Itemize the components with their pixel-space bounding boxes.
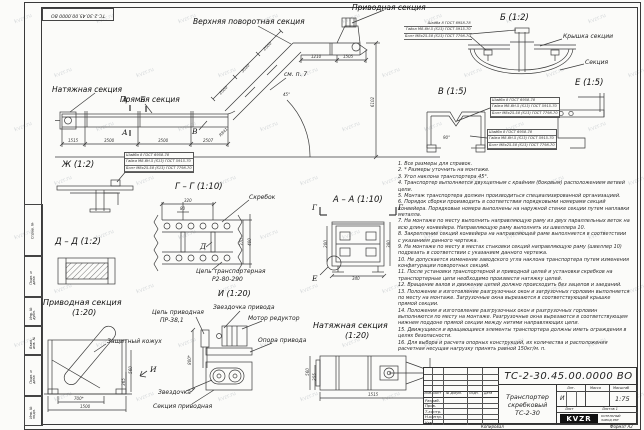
dim-6102: 6102 — [371, 97, 375, 107]
mass-header: Масса — [590, 387, 601, 390]
label-motor-reducer: Мотор редуктор — [248, 316, 300, 322]
stamp-cell-podp1: Подп. и дата — [24, 255, 43, 298]
stamp-cell-sprav: Справ. № — [24, 204, 43, 257]
dim-1210: 1210 — [311, 55, 321, 59]
kvzr-logo-text: KVZR — [566, 415, 591, 423]
title-block-left-grid: Изм. Лист № докум. Подп. Дата Разраб. Пр… — [424, 368, 499, 425]
label-straight-section: Прямая секция — [120, 96, 180, 104]
drive-section-title: Приводная секция — [43, 299, 122, 307]
label-drive-chain-1: Цепь приводная — [152, 310, 204, 316]
note-14: 14. Положения и изготовление разгрузочны… — [398, 308, 630, 327]
view-gg-title: Г – Г (1:10) — [175, 183, 223, 192]
dim-400: 400 — [248, 238, 252, 246]
dim-3500-1: 3500 — [104, 139, 114, 143]
label-drive-sprocket: Звездочка привода — [213, 305, 275, 311]
fastener-line3: Болт М8х25.58 (S13) ГОСТ 7798-70 — [404, 34, 472, 40]
dim-200: 200 — [324, 240, 328, 248]
view-mark-i: И — [150, 366, 157, 374]
note-4: 4. Транспортер выполняется двухцепным с … — [398, 180, 630, 193]
note-8: 8. Закрепление секций конвейера на напра… — [398, 231, 630, 244]
label-protective-casing: Защитный кожух — [107, 339, 162, 345]
note-9: 9. На монтаже по месту в местах стыковки… — [398, 244, 630, 257]
section-mark-d: Д — [200, 243, 206, 251]
note-13: 13. Положение и изготовление разгрузочны… — [398, 289, 630, 308]
dim-365: 365 — [122, 378, 126, 386]
label-see-note: см. п. 7 — [284, 72, 307, 78]
dim-255: 255 — [313, 373, 317, 381]
label-drive-chain-2: ПР-38,1 — [160, 318, 184, 324]
stamp-label: Подп. и дата — [30, 367, 37, 384]
label-drive-support: Опора привода — [258, 338, 306, 344]
dim-80: 80 — [180, 207, 185, 211]
col-list: Лист — [433, 392, 441, 395]
part-name-1: Транспортер — [506, 394, 549, 401]
note-7: 7. На монтаже по месту выполнить направл… — [398, 218, 630, 231]
view-v-title: В (1:5) — [438, 88, 467, 97]
note-15: 15. Движущиеся и вращающиеся элементы тр… — [398, 327, 630, 340]
part-name-3: ТС-2-30 — [515, 410, 540, 417]
label-drive-section: Приводная секция — [352, 4, 426, 12]
dim-320: 320 — [184, 199, 192, 203]
row-razrab: Разраб. — [425, 399, 440, 403]
row-utv: Утв. — [425, 421, 433, 425]
fastener-callout-e: Шайба 8 ГОСТ 6958-78 Гайка М8-6Н.5 (S13)… — [487, 129, 557, 150]
kvzr-logo: KVZR — [560, 414, 598, 423]
stamp-label: Подп. и дата — [30, 268, 37, 285]
label-section-cover: Крышка секции — [563, 34, 613, 40]
copied-label: Копировал — [481, 425, 504, 429]
view-dd-title: Д – Д (1:2) — [55, 238, 101, 247]
row-prov: Пров. — [425, 404, 436, 408]
dim-1515-tension: 1515 — [368, 393, 378, 397]
dim-1500: 1500 — [80, 405, 90, 409]
label-tension-section: Натяжная секция — [52, 86, 122, 94]
stamp-label: Справ. № — [32, 222, 35, 239]
view-aa-title: А – А (1:10) — [333, 196, 383, 205]
section-mark-a-top: А — [122, 96, 128, 104]
title-block-name-cell: Транспортер скребковый ТС-2-30 — [499, 385, 557, 425]
fastener-callout-b: Шайба 8 ГОСТ 6958-78 Гайка М8-6Н.5 (S13)… — [404, 21, 472, 40]
col-izm: Изм. — [425, 392, 433, 395]
label-section: Секция — [585, 60, 608, 66]
mark-g-left: Г — [312, 204, 317, 212]
sheets-label: Листов 1 — [602, 408, 618, 411]
note-11: 11. После установки транспортерной и при… — [398, 269, 630, 282]
dim-380: 380 — [387, 240, 391, 248]
label-scraper: Скребок — [249, 195, 275, 201]
fastener-line3: Болт М8х25.58 (S13) ГОСТ 7798-70 — [488, 143, 556, 149]
view-e-title: Е (1:5) — [575, 79, 603, 88]
stamp-cell-vzam: Взам. инв. № — [24, 325, 43, 356]
section-mark-v: В — [192, 128, 198, 136]
row-nkontr: Н.контр. — [425, 415, 442, 419]
col-podp: Подп. — [469, 392, 479, 395]
col-ndokum: № докум. — [446, 392, 462, 395]
mark-e-detail: Е — [312, 275, 317, 283]
stamp-cell-podp2: Подп. и дата — [24, 354, 43, 397]
doc-number: ТС-2-30.45.00.0000 ВО — [504, 371, 632, 382]
dim-angle-45: 45° — [283, 93, 290, 97]
liter-header: Лит. — [567, 387, 575, 390]
note-12: 12. Вращение валов и движение цепей долж… — [398, 282, 630, 288]
stamp-label: Взам. инв. № — [30, 332, 37, 349]
liter-value: И — [560, 395, 565, 402]
view-i-title: И (1:20) — [218, 290, 251, 298]
sheet-label: Лист — [565, 408, 574, 411]
stamp-cell-inv-dubl: Инв. № дубл. — [24, 296, 43, 327]
tension-section-scale: (1:20) — [345, 332, 369, 340]
note-6: 6. Порядок сборки производить в соответс… — [398, 199, 630, 218]
dim-1505: 1505 — [343, 55, 353, 59]
dim-800: 800* — [188, 355, 192, 365]
format-label: Формат А2 — [610, 425, 633, 429]
dim-560-tension: 560 — [306, 368, 310, 376]
dim-3500-2: 3500 — [158, 139, 168, 143]
dim-1515: 1515 — [68, 139, 78, 143]
section-mark-b: Б — [140, 96, 146, 104]
dim-560-drive: 560 — [129, 366, 133, 374]
title-block-doc-cell: ТС-2-30.45.00.0000 ВО — [499, 368, 638, 385]
tension-section-title: Натяжная секция — [313, 322, 388, 330]
label-conveyor-chain-2: Р2-80-290 — [212, 277, 243, 283]
fastener-callout-zh: Шайба 8 ГОСТ 6958-78 Гайка М8-6Н.5 (S13)… — [124, 152, 194, 173]
drawing-sheet: kvzr.rukvzr.rukvzr.rukvzr.rukvzr.rukvzr.… — [0, 0, 644, 430]
fastener-callout-v: Шайба 8 ГОСТ 6958-78 Гайка М8-6Н.5 (S13)… — [490, 97, 560, 118]
company-name-2: ЗАВОД РЭР — [601, 419, 618, 422]
col-data: Дата — [484, 392, 492, 395]
part-name-2: скребковый — [508, 402, 547, 409]
section-mark-a-bottom: А — [122, 129, 128, 137]
dim-700: 700* — [74, 397, 84, 401]
stamp-label: Инв. № подл. — [30, 402, 37, 419]
note-16: 16. Для выбора и расчета опорных констру… — [398, 340, 630, 353]
label-conveyor-chain-1: Цепь транспортерная — [196, 269, 266, 275]
row-tkontr: Т.контр. — [425, 410, 441, 414]
scale-value: 1:75 — [615, 395, 630, 403]
drive-section-scale: (1:20) — [72, 309, 96, 317]
stamp-cell-inv-podl: Инв. № подл. — [24, 395, 43, 426]
dim-2507: 2507 — [203, 139, 213, 143]
note-10: 10. Не допускается изменение заводского … — [398, 257, 630, 270]
doc-number-top-box: ТС-2-30.45.00.0000 ВО — [42, 8, 114, 21]
fastener-line3: Болт М8х25.58 (S13) ГОСТ 7798-70 — [491, 111, 559, 117]
dim-340: 340 — [352, 277, 360, 281]
view-b-title: Б (1:2) — [500, 14, 529, 23]
stamp-label: Инв. № дубл. — [30, 303, 37, 320]
technical-notes: 1. Все размеры для справок. 2. * Размеры… — [398, 161, 630, 352]
scale-header: Масштаб — [613, 387, 629, 390]
title-block-right: Лит. Масса Масштаб И 1:75 Лист Листов 1 … — [557, 385, 638, 425]
view-zh-title: Ж (1:2) — [62, 161, 94, 170]
dim-370: 370 — [240, 238, 244, 246]
doc-number-top: ТС-2-30.45.00.0000 ВО — [51, 12, 105, 17]
fastener-line3: Болт М8х25.58 (S13) ГОСТ 7798-70 — [125, 166, 193, 172]
label-sprocket: Звездочка — [158, 390, 191, 396]
title-block: Изм. Лист № докум. Подп. Дата Разраб. Пр… — [423, 367, 637, 424]
label-upper-turn-section: Верхняя поворотная секция — [193, 18, 305, 26]
dim-90deg: 90° — [443, 136, 450, 140]
label-drive-section-bottom: Секция приводная — [153, 404, 212, 410]
